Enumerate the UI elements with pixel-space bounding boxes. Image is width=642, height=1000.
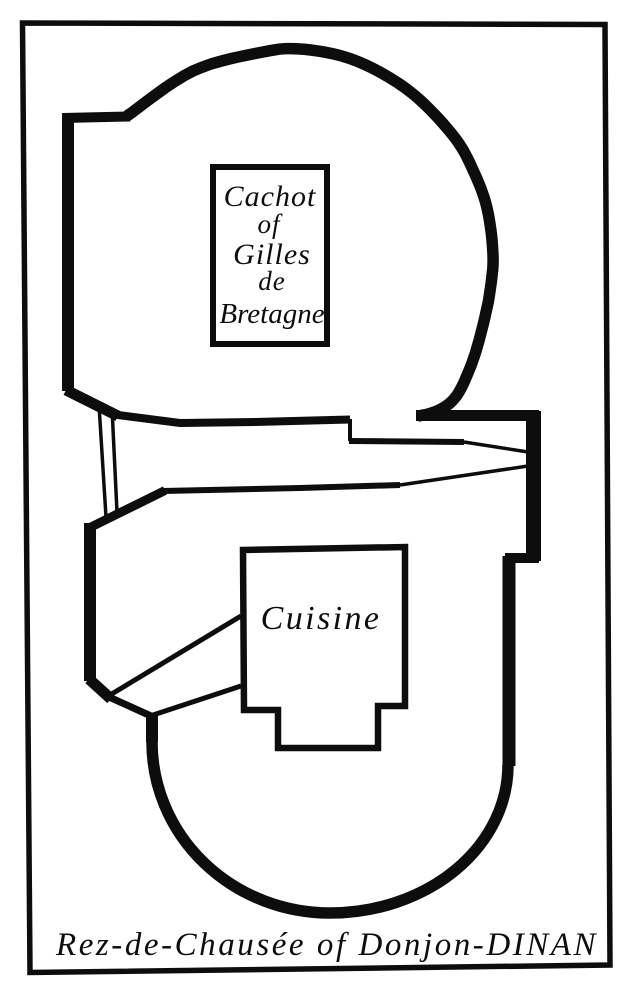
svg-text:Bretagne: Bretagne bbox=[219, 298, 324, 330]
svg-text:Rez-de-Chausée of Donjon-DINAN: Rez-de-Chausée of Donjon-DINAN bbox=[55, 927, 598, 963]
svg-text:of: of bbox=[257, 209, 283, 239]
svg-text:Cuisine: Cuisine bbox=[261, 600, 382, 637]
svg-text:de: de bbox=[258, 266, 285, 296]
